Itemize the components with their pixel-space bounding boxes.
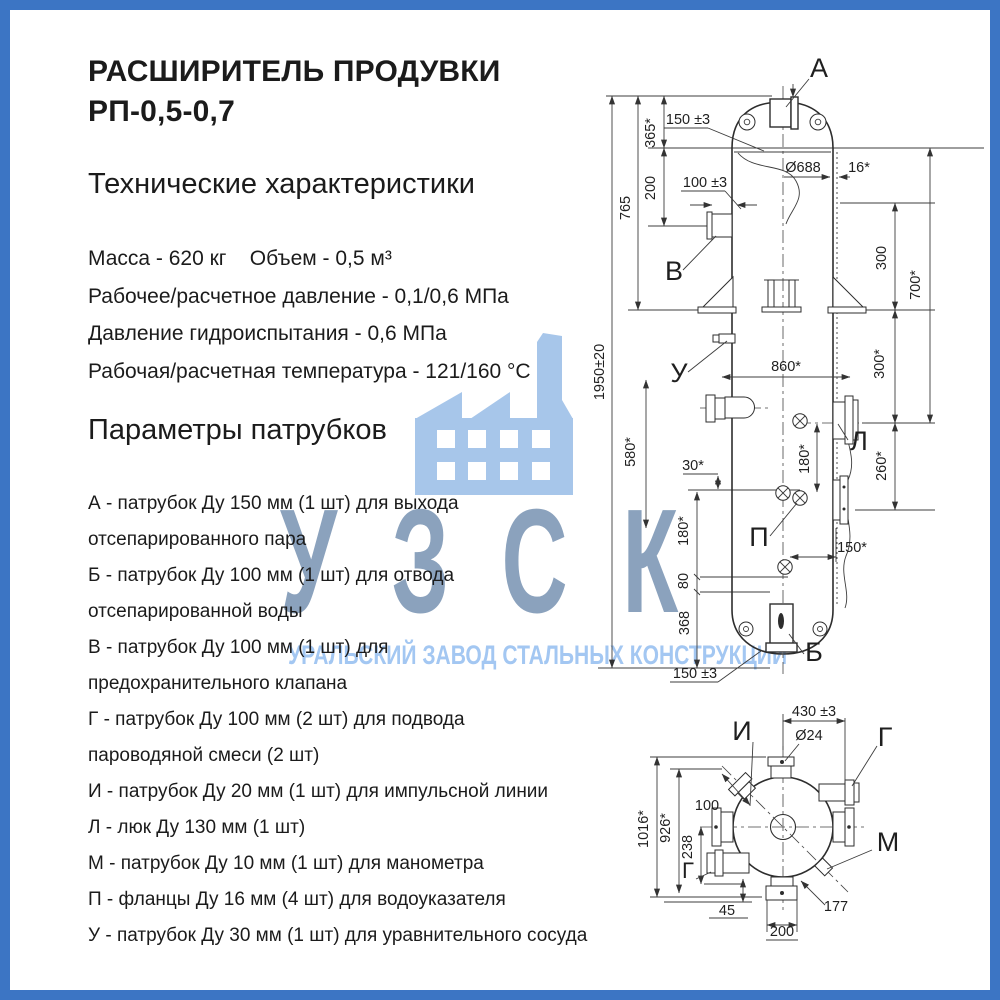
port-label-g-right: Г	[878, 722, 893, 752]
dim-580: 580*	[623, 437, 639, 467]
dim-765: 765	[618, 196, 634, 220]
list-item: И - патрубок Ду 20 мм (1 шт) для импульс…	[88, 774, 593, 810]
spec-temperature: Рабочая/расчетная температура - 121/160 …	[88, 353, 531, 391]
port-label-m: М	[877, 827, 900, 857]
list-item: отсепарированного пара	[88, 522, 593, 558]
top-nozzle	[768, 757, 794, 778]
dim-150-top: 150 ±3	[666, 112, 710, 128]
nozzle-list: А - патрубок Ду 150 мм (1 шт) для выхода…	[88, 486, 593, 954]
dim-368: 368	[677, 611, 693, 635]
list-item: А - патрубок Ду 150 мм (1 шт) для выхода	[88, 486, 593, 522]
dim-200: 200	[643, 176, 659, 200]
side-nozzle-right	[833, 808, 854, 846]
list-item: Б - патрубок Ду 100 мм (1 шт) для отвода	[88, 558, 593, 594]
dim-1950: 1950±20	[592, 344, 608, 400]
page-title-line1: РАСШИРИТЕЛЬ ПРОДУВКИ	[88, 52, 501, 92]
port-label-b: Б	[805, 637, 823, 667]
list-item: Г - патрубок Ду 100 мм (2 шт) для подвод…	[88, 702, 593, 738]
nozzle-m	[815, 858, 833, 876]
list-item: У - патрубок Ду 30 мм (1 шт) для уравнит…	[88, 918, 593, 954]
dim-177: 177	[824, 899, 848, 915]
list-item: В - патрубок Ду 100 мм (1 шт) для	[88, 630, 593, 666]
page-title: РАСШИРИТЕЛЬ ПРОДУВКИ РП-0,5-0,7	[88, 52, 501, 132]
section-heading-specs: Технические характеристики	[88, 168, 475, 201]
dim-dia24: Ø24	[795, 728, 822, 744]
port-label-i: И	[732, 716, 751, 746]
dim-300-lower: 300*	[872, 349, 888, 379]
list-item: М - патрубок Ду 10 мм (1 шт) для маномет…	[88, 846, 593, 882]
dim-700: 700*	[908, 270, 924, 300]
list-item: отсепарированной воды	[88, 594, 593, 630]
dim-180-left: 180*	[676, 516, 692, 546]
dim-150-right: 150*	[837, 540, 867, 556]
dim-diameter: Ø688	[785, 160, 820, 176]
front-view: 150 ±3 365* 200 765 1950±20 100 ±3 Ø688 …	[592, 53, 984, 682]
port-label-a: А	[810, 53, 828, 83]
dim-100: 100 ±3	[683, 175, 727, 191]
nozzle-v	[707, 212, 732, 239]
port-label-g-left: Г	[682, 858, 694, 883]
nozzle-g-left	[707, 850, 749, 876]
technical-drawing: 150 ±3 365* 200 765 1950±20 100 ±3 Ø688 …	[588, 30, 990, 990]
dim-430: 430 ±3	[792, 704, 836, 720]
list-item: пароводяной смеси (2 шт)	[88, 738, 593, 774]
dim-150-bottom: 150 ±3	[673, 666, 717, 682]
dim-300-upper: 300	[874, 246, 890, 270]
dim-926: 926*	[658, 813, 674, 843]
dim-80: 80	[676, 573, 692, 589]
spec-mass-volume: Масса - 620 кг Объем - 0,5 м³	[88, 240, 531, 278]
dim-1016: 1016*	[636, 810, 652, 848]
list-item: предохранительного клапана	[88, 666, 593, 702]
nozzle-b	[766, 604, 797, 652]
dim-365: 365*	[643, 118, 659, 148]
bottom-nozzle	[766, 877, 797, 900]
dim-860: 860*	[771, 359, 801, 375]
section-heading-nozzles: Параметры патрубков	[88, 414, 387, 447]
port-label-u: У	[670, 358, 688, 388]
dim-180-center: 180*	[797, 444, 813, 474]
page-title-line2: РП-0,5-0,7	[88, 92, 501, 132]
port-label-p: П	[749, 522, 768, 552]
nozzle-a	[770, 97, 798, 129]
nozzle-u	[713, 334, 735, 343]
dim-30: 30*	[682, 458, 704, 474]
dim-45: 45	[719, 903, 735, 919]
spec-pressure: Рабочее/расчетное давление - 0,1/0,6 МПа	[88, 278, 531, 316]
dim-238: 238	[680, 835, 696, 859]
top-view: 430 ±3 Ø24 100 1016* 926* 238 45 200 177…	[636, 704, 899, 940]
port-label-l: Л	[850, 426, 868, 456]
list-item: П - фланцы Ду 16 мм (4 шт) для водоуказа…	[88, 882, 593, 918]
spec-list: Масса - 620 кг Объем - 0,5 м³ Рабочее/ра…	[88, 240, 531, 390]
list-item: Л - люк Ду 130 мм (1 шт)	[88, 810, 593, 846]
nozzle-g	[706, 395, 755, 422]
support-brackets	[698, 277, 866, 313]
spec-hydro-test: Давление гидроиспытания - 0,6 МПа	[88, 315, 531, 353]
dim-200-top-view: 200	[770, 924, 794, 940]
dim-260: 260*	[874, 451, 890, 481]
port-label-v: В	[665, 256, 683, 286]
dim-16: 16*	[848, 160, 870, 176]
dim-100-top-view: 100	[695, 798, 719, 814]
spec-column: РАСШИРИТЕЛЬ ПРОДУВКИ РП-0,5-0,7 Техничес…	[0, 0, 600, 1000]
